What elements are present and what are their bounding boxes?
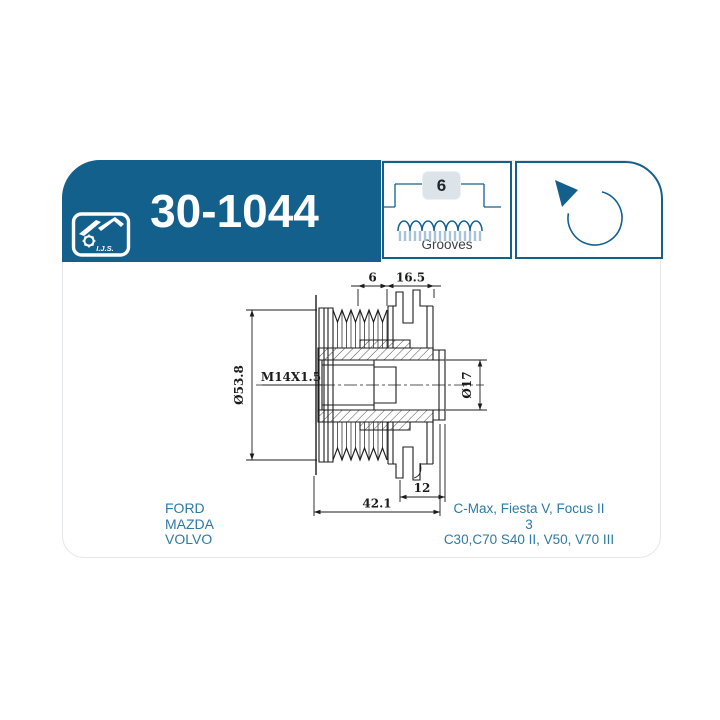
logo-text: I.J.S. [96, 244, 114, 253]
brand-item: FORD [165, 501, 214, 517]
brand-item: MAZDA [165, 517, 214, 533]
header-band: I.J.S. 30-1044 [62, 160, 381, 262]
ijs-factory-gear-icon: I.J.S. [71, 210, 131, 258]
model-item: C30,C70 S40 II, V50, V70 III [419, 532, 639, 548]
dimension-label-front-length: 16.5 [396, 271, 425, 285]
groove-count-badge: 6 [422, 171, 461, 200]
rotation-direction-icon [517, 163, 661, 257]
dimension-label-thread: M14X1.5 [261, 370, 321, 384]
brand-item: VOLVO [165, 532, 214, 548]
model-item: C-Max, Fiesta V, Focus II [419, 501, 639, 517]
model-item: 3 [419, 517, 639, 533]
pulley-cross-section-drawing: 6 16.5 Ø53.8 M14X1.5 Ø17 12 42.1 [210, 262, 510, 518]
model-list: C-Max, Fiesta V, Focus II 3 C30,C70 S40 … [419, 501, 639, 548]
dimension-label-bore-diameter: Ø17 [460, 371, 474, 398]
dimension-label-cap-length: 12 [414, 481, 431, 495]
brand-list: FORD MAZDA VOLVO [165, 501, 214, 548]
rotation-panel [515, 161, 663, 259]
part-number: 30-1044 [124, 184, 319, 238]
dimension-label-overall-length: 42.1 [362, 497, 391, 511]
dimension-label-outer-diameter: Ø53.8 [232, 365, 246, 405]
grooves-panel: 6 Grooves [382, 161, 512, 259]
dimension-label-groove-width: 6 [368, 271, 376, 285]
